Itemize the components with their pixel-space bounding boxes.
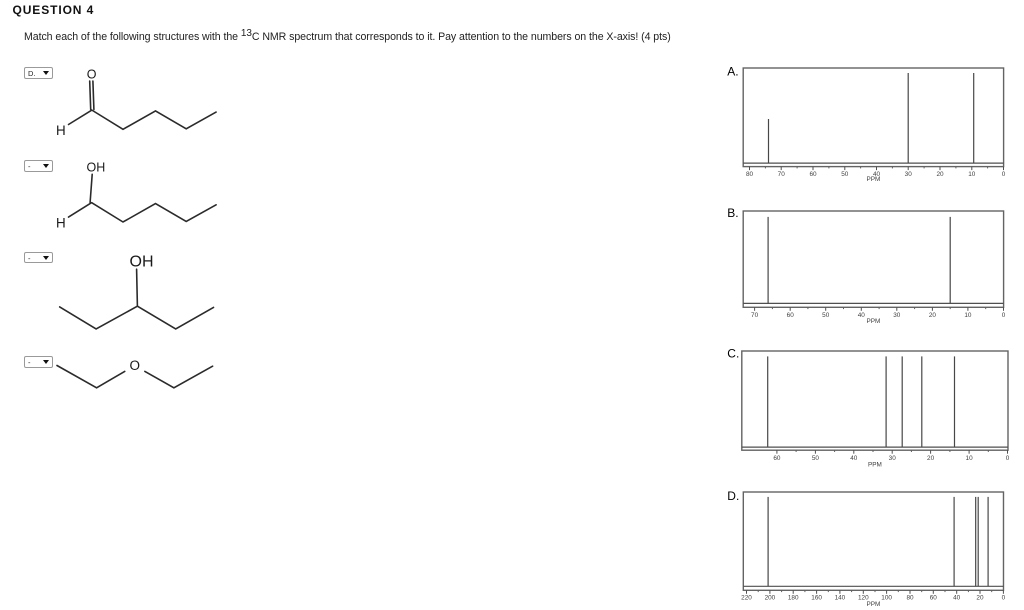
svg-text:0: 0 — [1006, 455, 1010, 462]
svg-text:20: 20 — [976, 594, 984, 601]
svg-text:10: 10 — [968, 171, 976, 178]
svg-text:60: 60 — [809, 171, 817, 178]
svg-text:H: H — [56, 216, 66, 231]
svg-text:60: 60 — [930, 594, 938, 601]
svg-text:0: 0 — [1002, 594, 1006, 601]
svg-text:A.: A. — [727, 65, 738, 79]
svg-text:80: 80 — [746, 171, 754, 178]
svg-text:100: 100 — [881, 594, 892, 601]
svg-text:O: O — [87, 68, 97, 82]
svg-text:PPM: PPM — [866, 600, 880, 607]
svg-text:50: 50 — [822, 312, 830, 319]
svg-text:50: 50 — [841, 171, 849, 178]
svg-text:OH: OH — [87, 161, 106, 175]
svg-text:220: 220 — [741, 594, 752, 601]
svg-text:O: O — [130, 358, 141, 373]
svg-text:30: 30 — [893, 312, 901, 319]
svg-text:20: 20 — [927, 455, 935, 462]
svg-text:40: 40 — [953, 594, 961, 601]
svg-text:H: H — [56, 123, 66, 138]
svg-text:80: 80 — [906, 594, 914, 601]
svg-text:PPM: PPM — [866, 318, 880, 325]
svg-text:60: 60 — [787, 312, 795, 319]
svg-text:PPM: PPM — [866, 176, 880, 183]
svg-text:10: 10 — [964, 312, 972, 319]
svg-text:30: 30 — [889, 455, 897, 462]
svg-text:B.: B. — [727, 206, 738, 220]
svg-text:PPM: PPM — [868, 461, 882, 468]
svg-text:20: 20 — [936, 171, 944, 178]
svg-text:0: 0 — [1002, 171, 1006, 178]
svg-text:180: 180 — [788, 594, 799, 601]
svg-text:60: 60 — [773, 455, 781, 462]
svg-text:C.: C. — [727, 346, 739, 360]
svg-text:160: 160 — [811, 594, 822, 601]
svg-text:20: 20 — [929, 312, 937, 319]
svg-text:200: 200 — [765, 594, 776, 601]
svg-text:30: 30 — [905, 171, 913, 178]
svg-text:140: 140 — [835, 594, 846, 601]
svg-text:70: 70 — [778, 171, 786, 178]
svg-text:70: 70 — [751, 312, 759, 319]
svg-text:40: 40 — [850, 455, 858, 462]
svg-text:50: 50 — [812, 455, 820, 462]
svg-text:40: 40 — [858, 312, 866, 319]
svg-text:10: 10 — [966, 455, 974, 462]
svg-text:0: 0 — [1002, 312, 1006, 319]
svg-text:D.: D. — [727, 489, 739, 503]
svg-text:OH: OH — [130, 254, 154, 271]
